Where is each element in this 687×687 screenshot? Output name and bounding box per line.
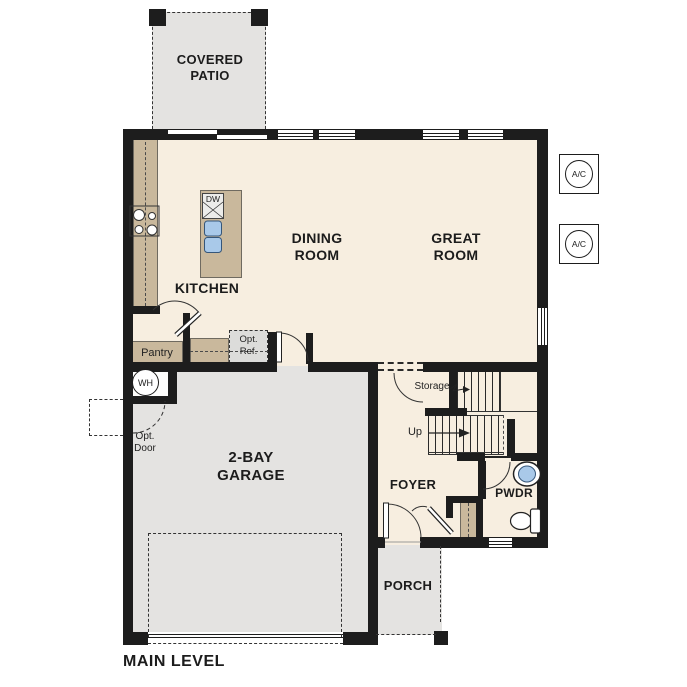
label-opt-ref: Opt. Ref. — [232, 334, 265, 358]
water-heater-label: WH — [138, 378, 153, 388]
wall-garage-right — [368, 362, 378, 645]
wall-closet-pwdr — [476, 497, 483, 540]
wall-jamb-right — [306, 333, 313, 364]
coat-closet-shelf-dash — [468, 503, 469, 537]
patio-post-left — [149, 9, 166, 26]
label-storage: Storage — [410, 381, 454, 393]
stairs-lower-flight — [428, 415, 503, 455]
plan-title: MAIN LEVEL — [123, 652, 263, 671]
counter-dash-line — [145, 142, 146, 306]
wall-hall — [423, 362, 545, 372]
wall-pwdr-left — [478, 461, 486, 499]
wall-bottom-foyer-b — [420, 537, 488, 548]
wall-pwdr-top-b — [511, 453, 545, 461]
window-top-4 — [467, 129, 504, 140]
stairs-landing-line — [457, 411, 537, 412]
porch-post — [434, 631, 448, 645]
stairs-dash-line — [503, 415, 504, 455]
ac-circle-1: A/C — [565, 160, 593, 188]
window-top-1 — [277, 129, 314, 140]
patio-slider-pane-2 — [216, 134, 268, 140]
wall-pwdr-top-a — [457, 453, 485, 461]
window-top-2 — [318, 129, 356, 140]
wall-bottom-foyer-a — [368, 537, 385, 548]
ac-unit-2: A/C — [559, 224, 599, 264]
stairs-upper-flight — [457, 368, 501, 411]
room-label-covered-patio: COVERED PATIO — [164, 52, 256, 83]
floor-plan: WH A/C A/C — [0, 0, 687, 687]
label-up: Up — [405, 426, 425, 439]
hall-opening-dash-2 — [378, 369, 423, 371]
ac-unit-1: A/C — [559, 154, 599, 194]
room-label-pwdr: PWDR — [491, 486, 537, 500]
room-label-dining: DINING ROOM — [281, 230, 353, 264]
porch-dash-bottom — [376, 634, 436, 635]
wall-stairs-newel — [507, 419, 515, 457]
wall-closet-stub — [446, 496, 453, 518]
ac-label-1: A/C — [572, 169, 586, 179]
room-label-great: GREAT ROOM — [418, 230, 494, 264]
window-pwdr — [488, 537, 513, 548]
room-label-garage: 2-BAY GARAGE — [204, 449, 298, 485]
wall-left-garage — [123, 363, 133, 645]
hall-opening-dash-1 — [378, 362, 423, 364]
room-label-kitchen: KITCHEN — [167, 280, 247, 297]
garage-door-dash-below — [148, 643, 343, 644]
wall-pantry-right — [183, 313, 190, 366]
wall-stairs-mid — [425, 408, 467, 416]
window-right — [537, 307, 548, 346]
ac-label-2: A/C — [572, 239, 586, 249]
label-pantry: Pantry — [132, 347, 182, 360]
water-heater-symbol: WH — [132, 369, 159, 396]
ac-circle-2: A/C — [565, 230, 593, 258]
patio-post-right — [251, 9, 268, 26]
wall-left-upper — [123, 129, 133, 372]
garage-door-dashed-outline — [148, 533, 342, 637]
window-top-3 — [422, 129, 460, 140]
wall-pantry-stub — [123, 306, 160, 314]
patio-slider-pane-1 — [167, 129, 218, 135]
room-label-porch: PORCH — [381, 578, 435, 594]
opt-door-dashed-box — [89, 399, 123, 436]
wall-bottom-pwdr — [513, 537, 548, 548]
wall-wh-bottom — [123, 396, 177, 404]
porch-dash-right — [440, 546, 441, 622]
wall-jamb-left — [268, 332, 277, 364]
label-dishwasher: DW — [203, 194, 223, 204]
room-label-foyer: FOYER — [387, 477, 439, 493]
label-opt-door: Opt. Door — [127, 431, 163, 454]
